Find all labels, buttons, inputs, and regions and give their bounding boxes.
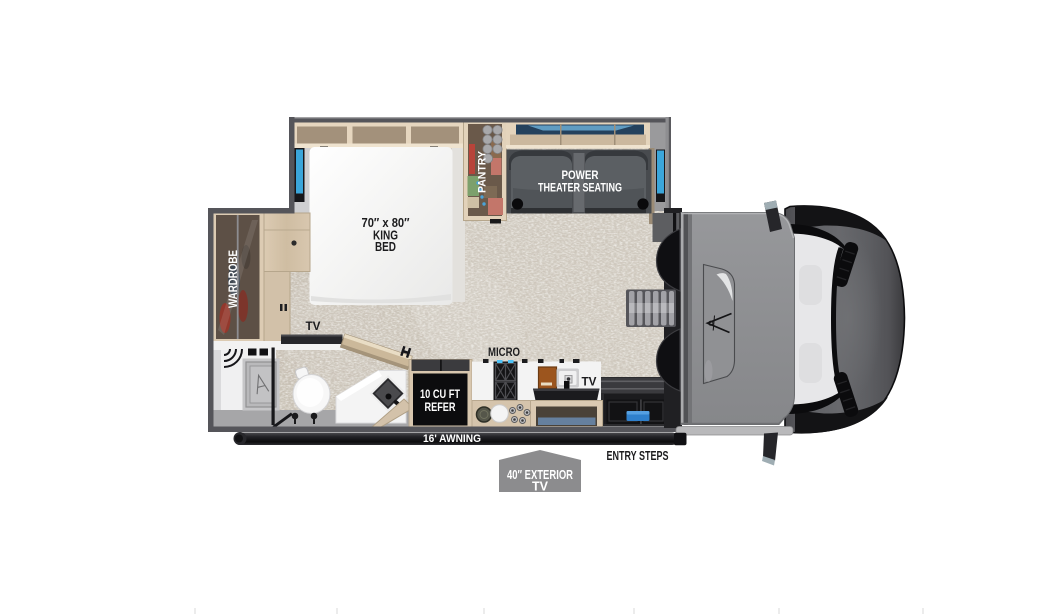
svg-text:TV: TV xyxy=(582,375,597,389)
svg-text:16' AWNING: 16' AWNING xyxy=(423,433,481,445)
svg-text:ENTRY STEPS: ENTRY STEPS xyxy=(607,449,669,463)
svg-text:10 CU FT: 10 CU FT xyxy=(420,389,460,401)
svg-text:MICRO: MICRO xyxy=(488,345,520,359)
svg-text:REFER: REFER xyxy=(425,402,457,414)
svg-text:BED: BED xyxy=(375,240,396,254)
svg-text:PANTRY: PANTRY xyxy=(477,150,489,193)
svg-text:WARDROBE: WARDROBE xyxy=(228,250,240,308)
svg-text:TV: TV xyxy=(532,480,549,494)
svg-text:TV: TV xyxy=(306,319,321,333)
svg-text:POWER: POWER xyxy=(562,170,600,182)
svg-text:THEATER SEATING: THEATER SEATING xyxy=(538,183,622,195)
